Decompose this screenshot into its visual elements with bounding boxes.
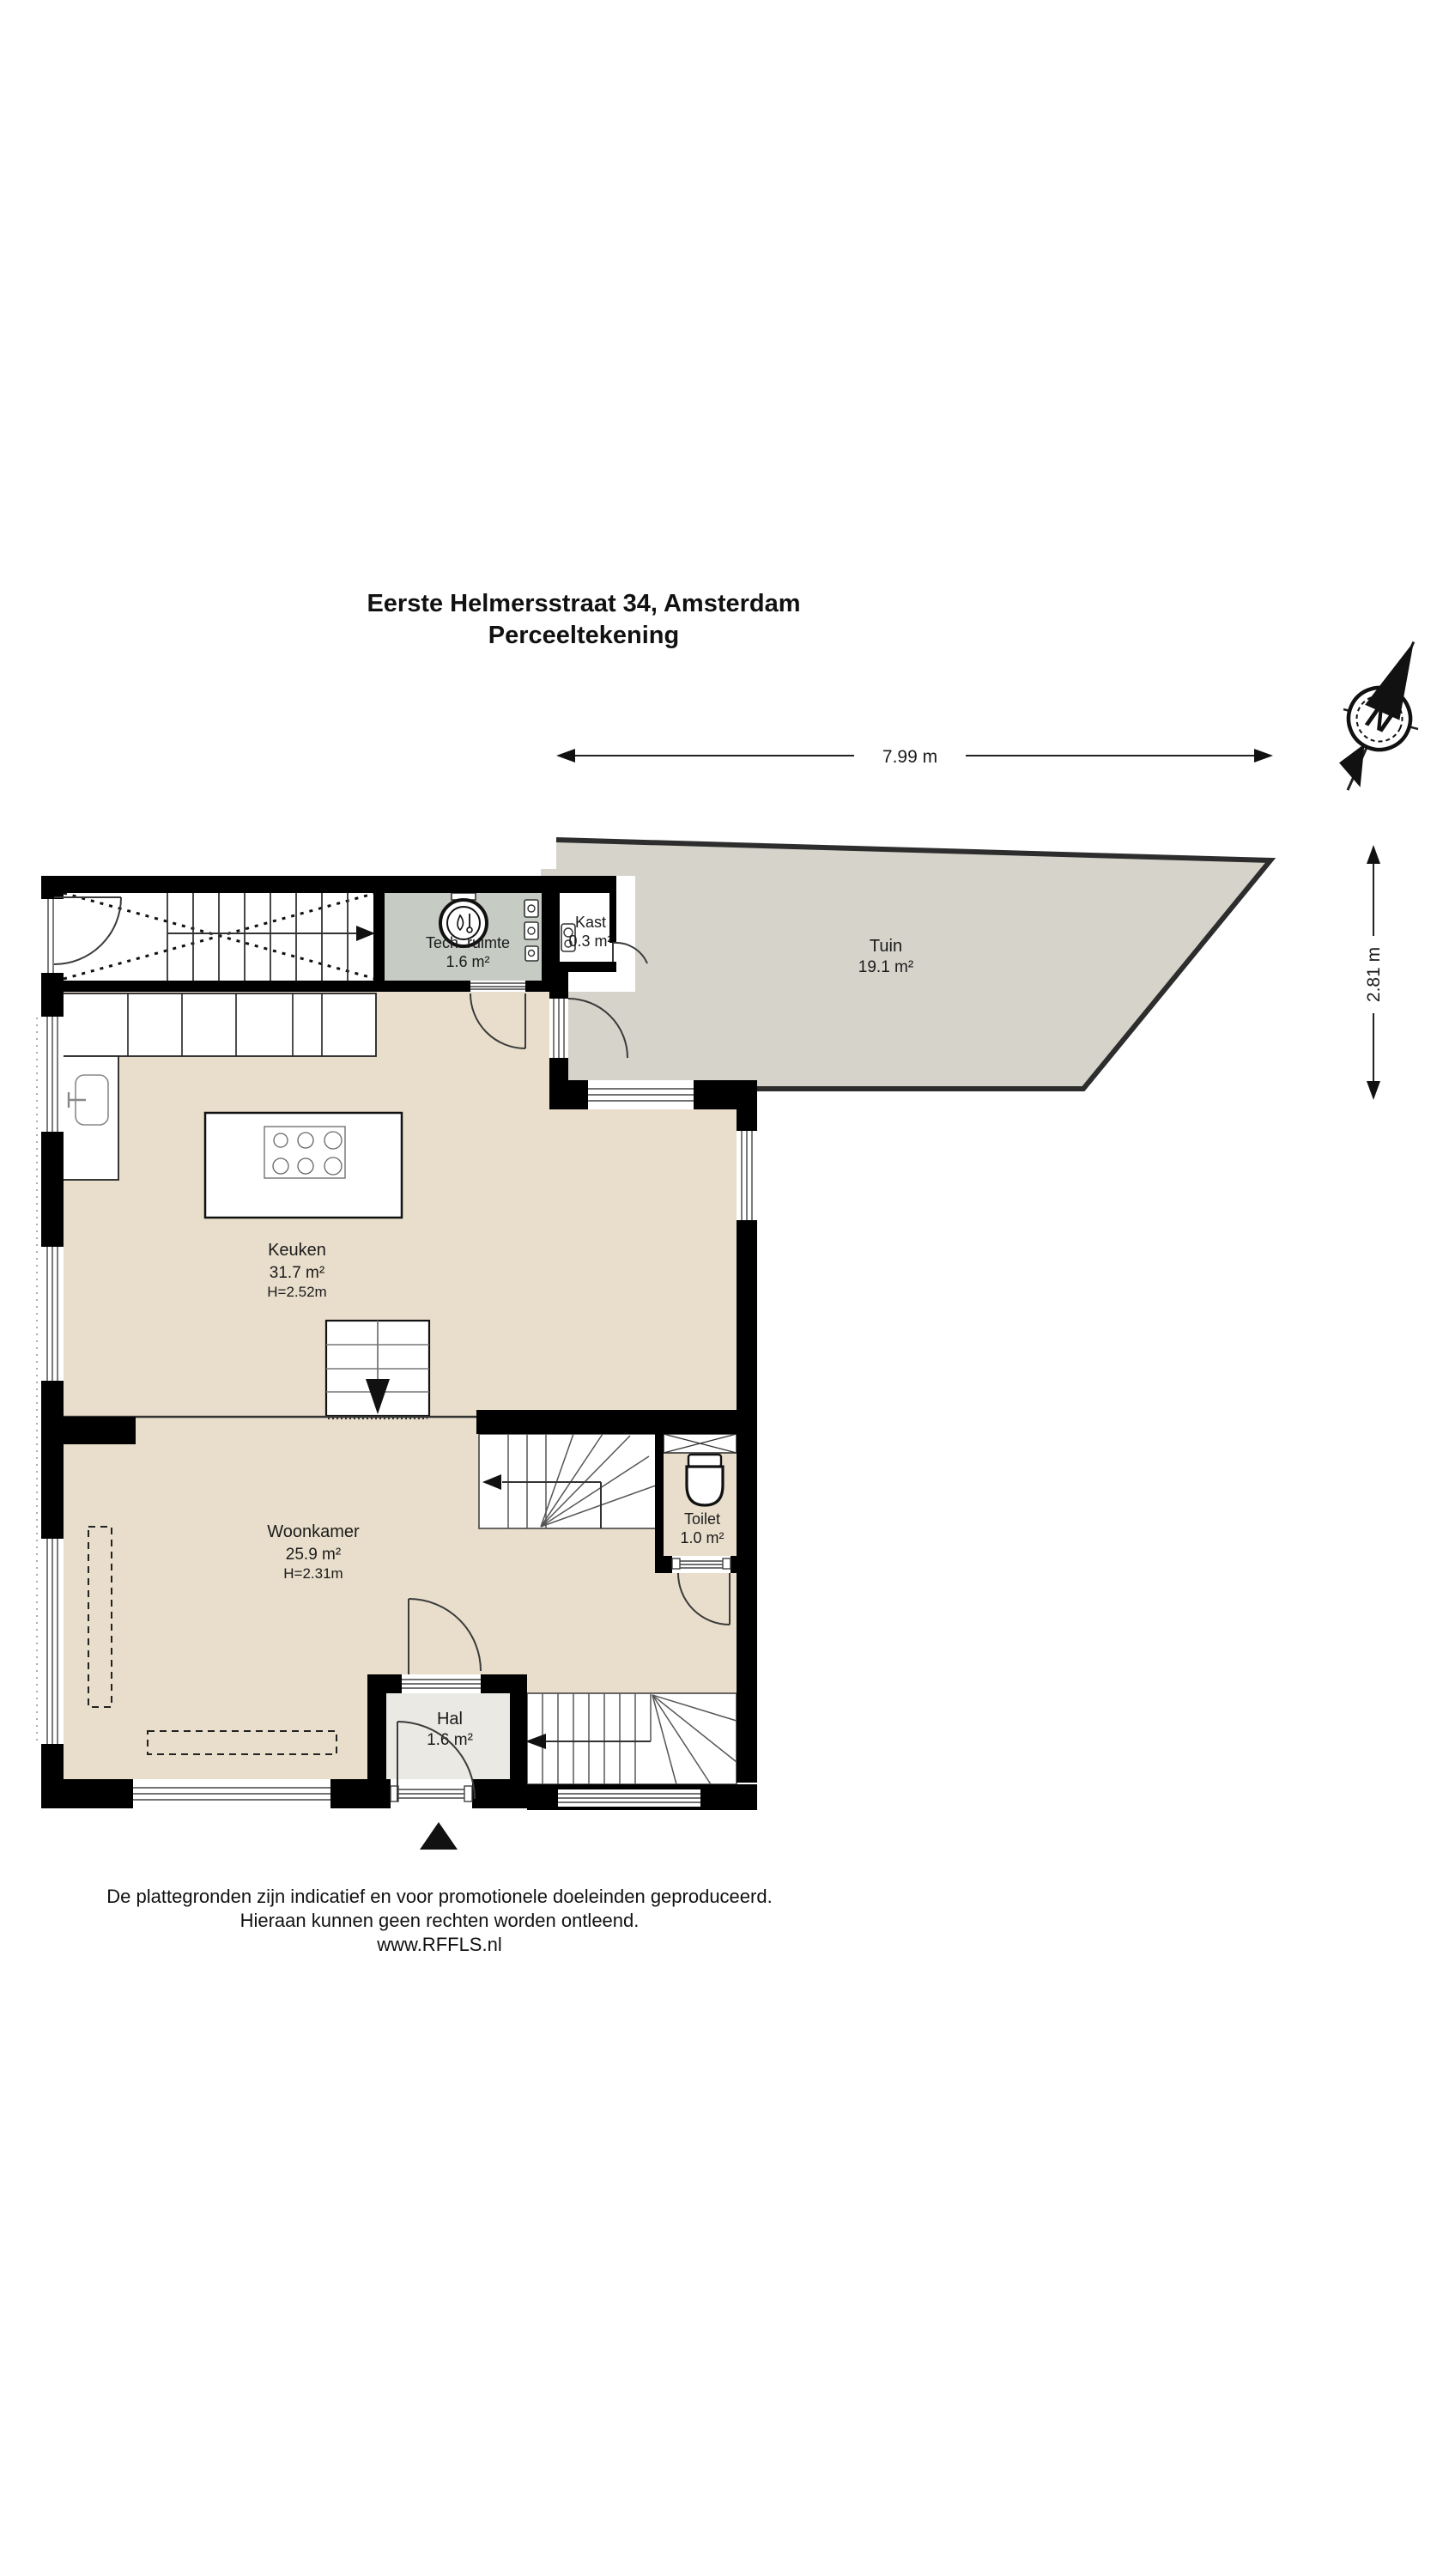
window-keuken-tuin (582, 1080, 700, 1109)
door-jamb (723, 1558, 731, 1569)
door-jamb (464, 1786, 472, 1801)
dimension-height: 2.81 m (1364, 845, 1384, 1100)
window-keuken-right (737, 1125, 757, 1226)
window-cap (41, 1011, 64, 1017)
wall-split-band (476, 1410, 737, 1434)
hal-area: 1.6 m² (427, 1731, 473, 1749)
footer-disclaimer: De plattegronden zijn indicatief en voor… (106, 1886, 772, 1955)
dim-width-arrow-left (556, 749, 575, 762)
dim-height-arrow-top (1367, 845, 1380, 864)
window-woonkamer-left (41, 1533, 64, 1750)
kitchen-counter-row (62, 993, 376, 1056)
window-cap (41, 1381, 64, 1387)
wall-keuken-east-lower (549, 1058, 568, 1080)
wall-split-stub (62, 1417, 136, 1444)
door-opening (41, 891, 64, 981)
window-keuken-left-2 (41, 1241, 64, 1387)
toilet-area: 1.0 m² (680, 1529, 724, 1546)
floorplan-page: Eerste Helmersstraat 34, Amsterdam Perce… (0, 0, 1449, 2576)
woonkamer-area: 25.9 m² (286, 1546, 341, 1564)
toilet-tank-icon (688, 1455, 721, 1467)
wall-top (41, 876, 616, 893)
meter-icon (525, 946, 538, 961)
winder-stairs-lower (525, 1693, 737, 1784)
window-cap (582, 1080, 588, 1109)
window-stairs-bottom (552, 1789, 706, 1807)
dimension-width: 7.99 m (556, 747, 1273, 767)
window-cap (700, 1789, 706, 1807)
window-cap (737, 1125, 757, 1131)
room-tuin: Tuin 19.1 m² (541, 840, 1270, 1089)
meter-icon (524, 922, 538, 939)
tuin-area: 19.1 m² (858, 958, 913, 976)
door-jamb (672, 1558, 680, 1569)
kast-label: Kast (575, 914, 606, 931)
title-subtitle: Perceeltekening (488, 622, 679, 649)
entrance-marker-triangle (420, 1822, 458, 1850)
wall-corridor-tech (373, 891, 385, 981)
toilet-bowl-icon (687, 1467, 723, 1505)
window-cap (694, 1080, 700, 1109)
dim-height-arrow-bottom (1367, 1081, 1380, 1100)
dim-height-label: 2.81 m (1364, 947, 1384, 1002)
footer-line-2: Hieraan kunnen geen rechten worden ontle… (240, 1910, 640, 1931)
window-cap (41, 1132, 64, 1138)
keuken-ceiling-height: H=2.52m (267, 1284, 326, 1300)
meter-icon (524, 900, 538, 917)
hal-label: Hal (437, 1710, 463, 1728)
dim-width-label: 7.99 m (882, 747, 937, 767)
tech-ruimte-label: Tech. ruimte (426, 934, 510, 951)
tech-ruimte-area: 1.6 m² (446, 953, 489, 970)
dim-width-arrow-right (1254, 749, 1273, 762)
footer-line-1: De plattegronden zijn indicatief en voor… (106, 1886, 772, 1907)
keuken-label: Keuken (268, 1241, 326, 1260)
floorplan-canvas: Eerste Helmersstraat 34, Amsterdam Perce… (0, 0, 1449, 2576)
page-title: Eerste Helmersstraat 34, Amsterdam Perce… (367, 590, 800, 649)
woonkamer-label: Woonkamer (267, 1522, 360, 1541)
window-cap (41, 1241, 64, 1247)
wall-hal-right (510, 1674, 527, 1786)
wall-keuken-east-upper (549, 972, 568, 999)
compass-rose: N (1319, 629, 1442, 803)
window-keuken-left-1 (41, 1011, 64, 1138)
wall-kast-bottom (549, 962, 616, 972)
split-level-stairs (326, 1321, 429, 1419)
woonkamer-ceiling-height: H=2.31m (283, 1565, 343, 1582)
kitchen-island (205, 1113, 402, 1218)
toilet-label: Toilet (684, 1510, 720, 1528)
winder-stairs-upper (479, 1434, 657, 1528)
window-cap (127, 1779, 133, 1808)
title-address: Eerste Helmersstraat 34, Amsterdam (367, 590, 800, 617)
window-cap (41, 1744, 64, 1750)
wall-kast-east (609, 893, 616, 943)
keuken-area: 31.7 m² (270, 1264, 324, 1282)
window-cap (41, 1533, 64, 1539)
window-cap (737, 1220, 757, 1226)
footer-website-link: www.RFFLS.nl (376, 1934, 501, 1955)
kast-area: 0.3 m² (568, 933, 612, 950)
tuin-label: Tuin (870, 937, 902, 956)
window-woonkamer-bottom (127, 1779, 336, 1808)
window-cap (330, 1779, 336, 1808)
wall-toilet-left (655, 1434, 664, 1573)
door-cap (41, 973, 64, 981)
window-cap (552, 1789, 558, 1807)
